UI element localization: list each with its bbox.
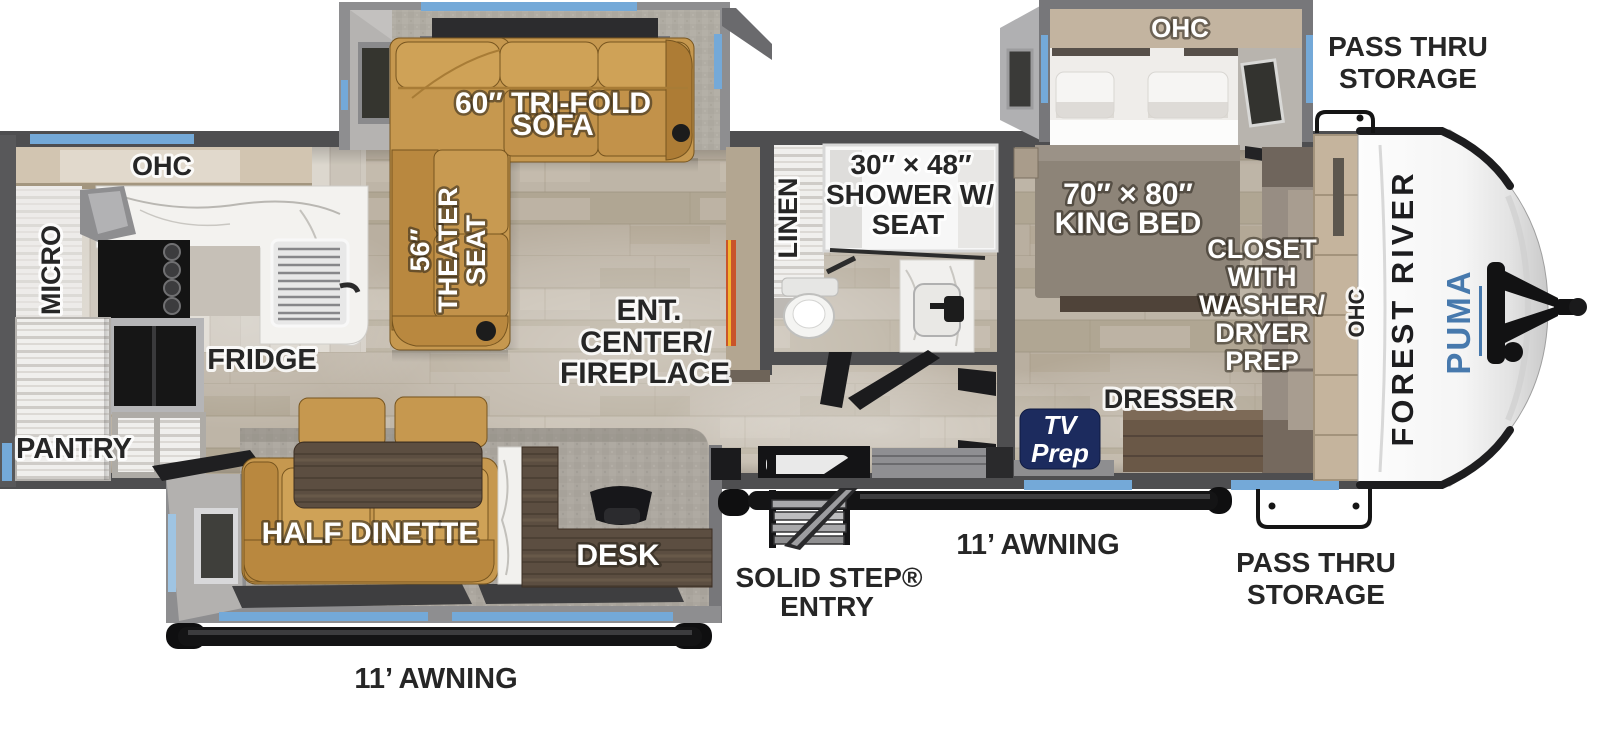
svg-text:THEATER: THEATER	[433, 187, 463, 313]
svg-text:KING BED: KING BED	[1055, 207, 1202, 240]
svg-text:STORAGE: STORAGE	[1247, 579, 1385, 610]
svg-text:PREP: PREP	[1225, 346, 1299, 376]
svg-text:FRIDGE: FRIDGE	[207, 344, 317, 376]
svg-text:PUMA: PUMA	[1440, 269, 1477, 374]
svg-text:SHOWER W/: SHOWER W/	[826, 179, 994, 210]
svg-text:30″ × 48″: 30″ × 48″	[850, 149, 971, 180]
svg-text:WITH: WITH	[1228, 262, 1297, 292]
svg-text:DESK: DESK	[576, 539, 660, 572]
svg-text:CENTER/: CENTER/	[580, 326, 712, 359]
svg-text:DRYER: DRYER	[1215, 318, 1309, 348]
svg-text:PASS THRU: PASS THRU	[1236, 547, 1396, 578]
svg-text:Prep: Prep	[1031, 438, 1089, 468]
svg-text:CLOSET: CLOSET	[1207, 234, 1317, 264]
svg-text:MICRO: MICRO	[36, 225, 66, 315]
svg-text:OHC: OHC	[132, 151, 192, 181]
svg-text:PASS THRU: PASS THRU	[1328, 31, 1488, 62]
svg-text:FIREPLACE: FIREPLACE	[560, 357, 730, 390]
svg-text:HALF DINETTE: HALF DINETTE	[262, 517, 479, 550]
svg-text:LINEN: LINEN	[773, 178, 803, 259]
svg-text:OHC: OHC	[1151, 13, 1209, 43]
svg-text:STORAGE: STORAGE	[1339, 63, 1477, 94]
svg-text:OHC: OHC	[1344, 288, 1369, 337]
svg-text:FOREST RIVER: FOREST RIVER	[1385, 169, 1420, 446]
svg-text:SOLID STEP®: SOLID STEP®	[735, 562, 922, 593]
svg-text:SEAT: SEAT	[872, 209, 945, 240]
svg-text:ENTRY: ENTRY	[780, 591, 874, 622]
svg-text:WASHER/: WASHER/	[1199, 290, 1326, 320]
svg-text:ENT.: ENT.	[616, 294, 681, 327]
svg-text:11’ AWNING: 11’ AWNING	[354, 663, 517, 695]
svg-text:PANTRY: PANTRY	[16, 433, 132, 465]
svg-text:DRESSER: DRESSER	[1104, 384, 1235, 414]
svg-text:56″: 56″	[405, 228, 435, 271]
svg-text:SEAT: SEAT	[461, 214, 491, 285]
svg-text:SOFA: SOFA	[512, 109, 594, 142]
svg-text:TV: TV	[1043, 410, 1079, 440]
svg-text:11’ AWNING: 11’ AWNING	[956, 529, 1119, 561]
